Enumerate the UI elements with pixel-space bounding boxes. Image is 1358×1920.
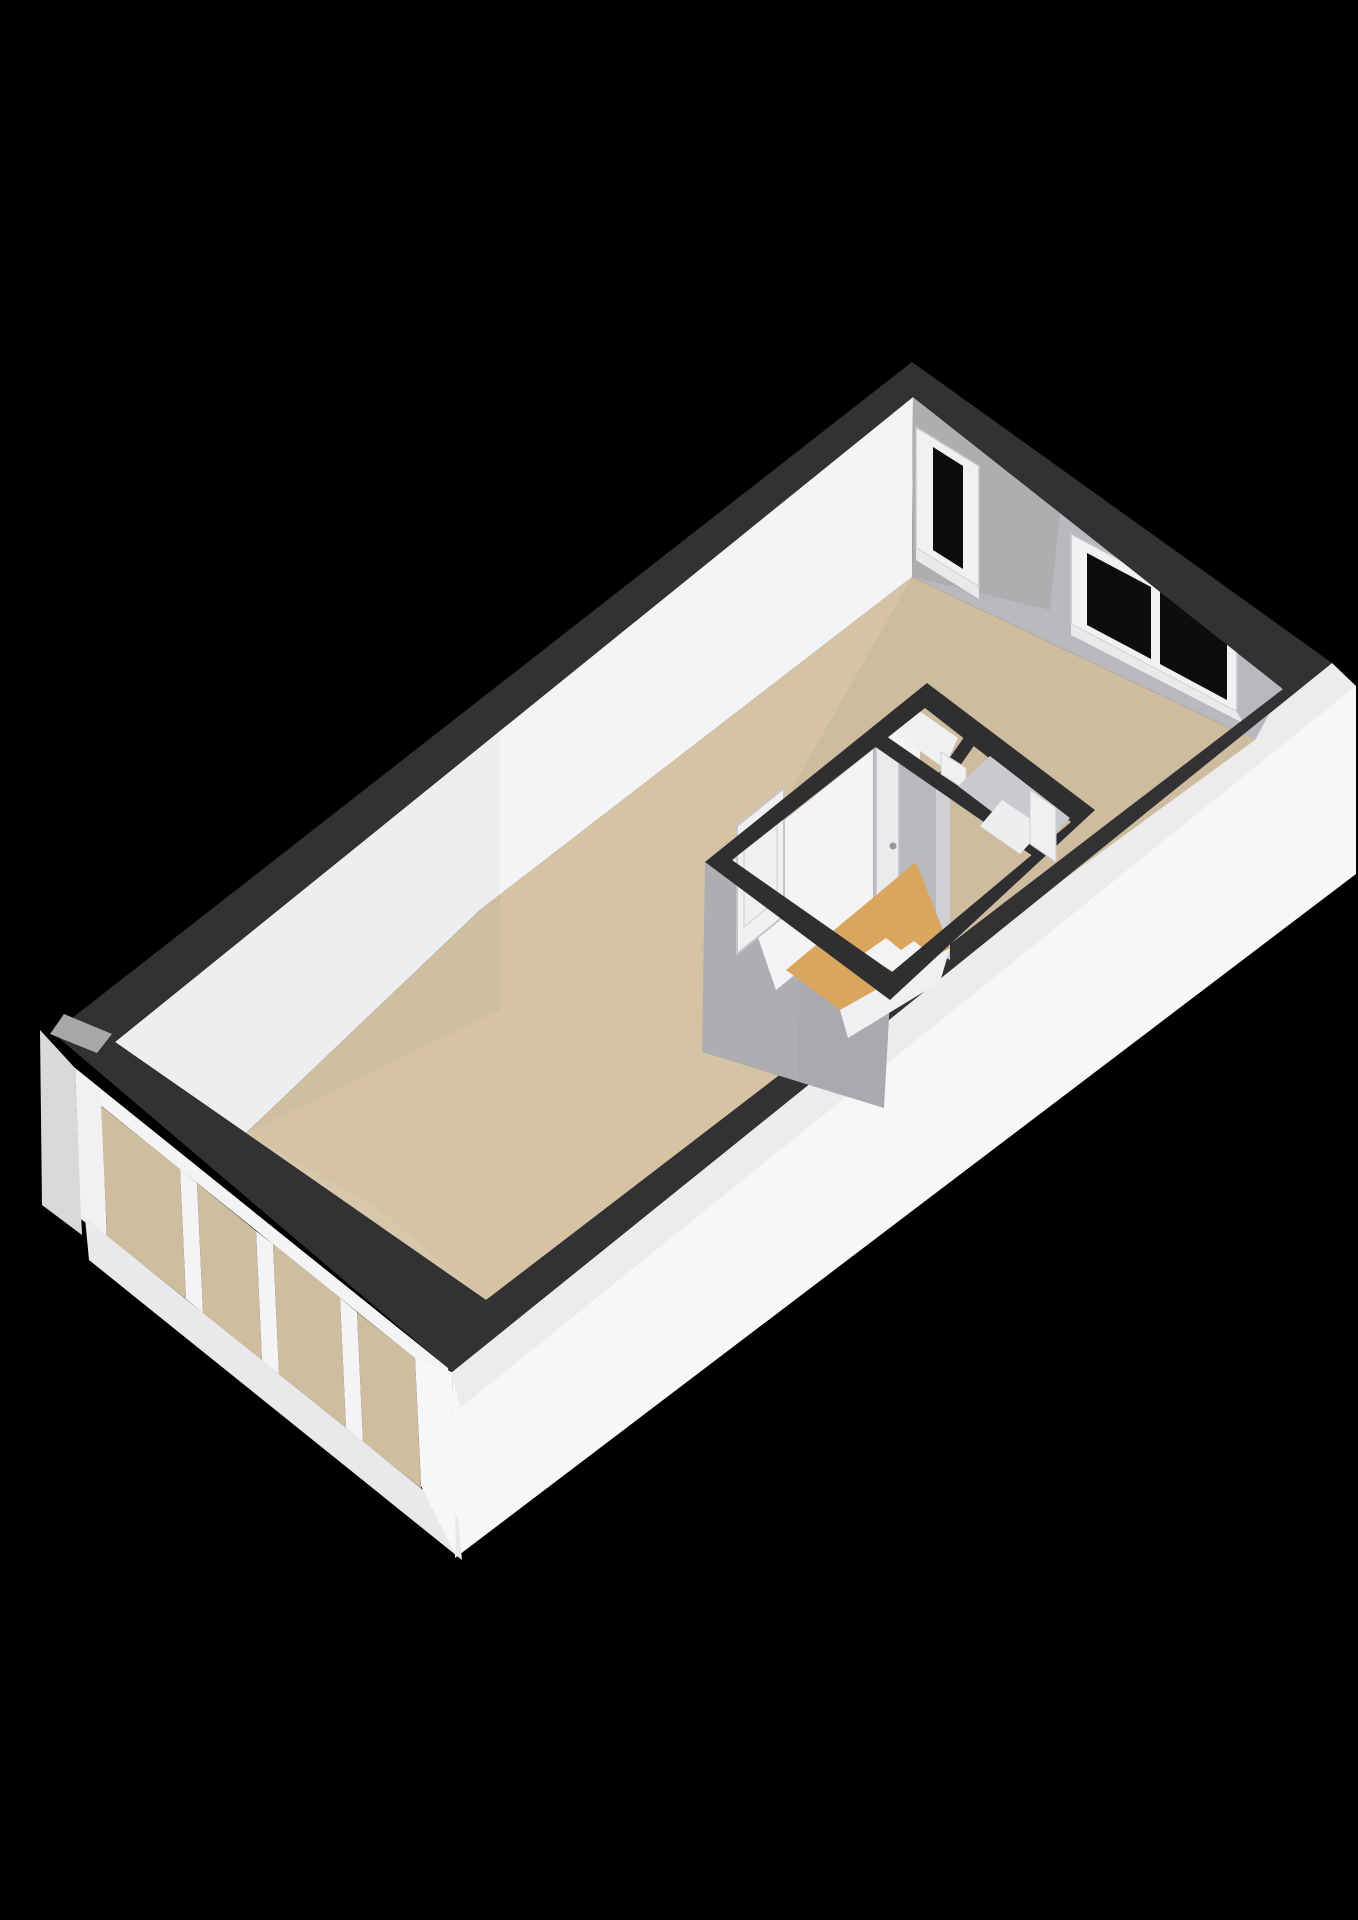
bathroom-door-handle xyxy=(890,843,897,850)
floor-plan-canvas xyxy=(0,0,1358,1920)
floor-plan-3d-render xyxy=(0,0,1358,1920)
narrow-window-glass xyxy=(933,447,963,569)
